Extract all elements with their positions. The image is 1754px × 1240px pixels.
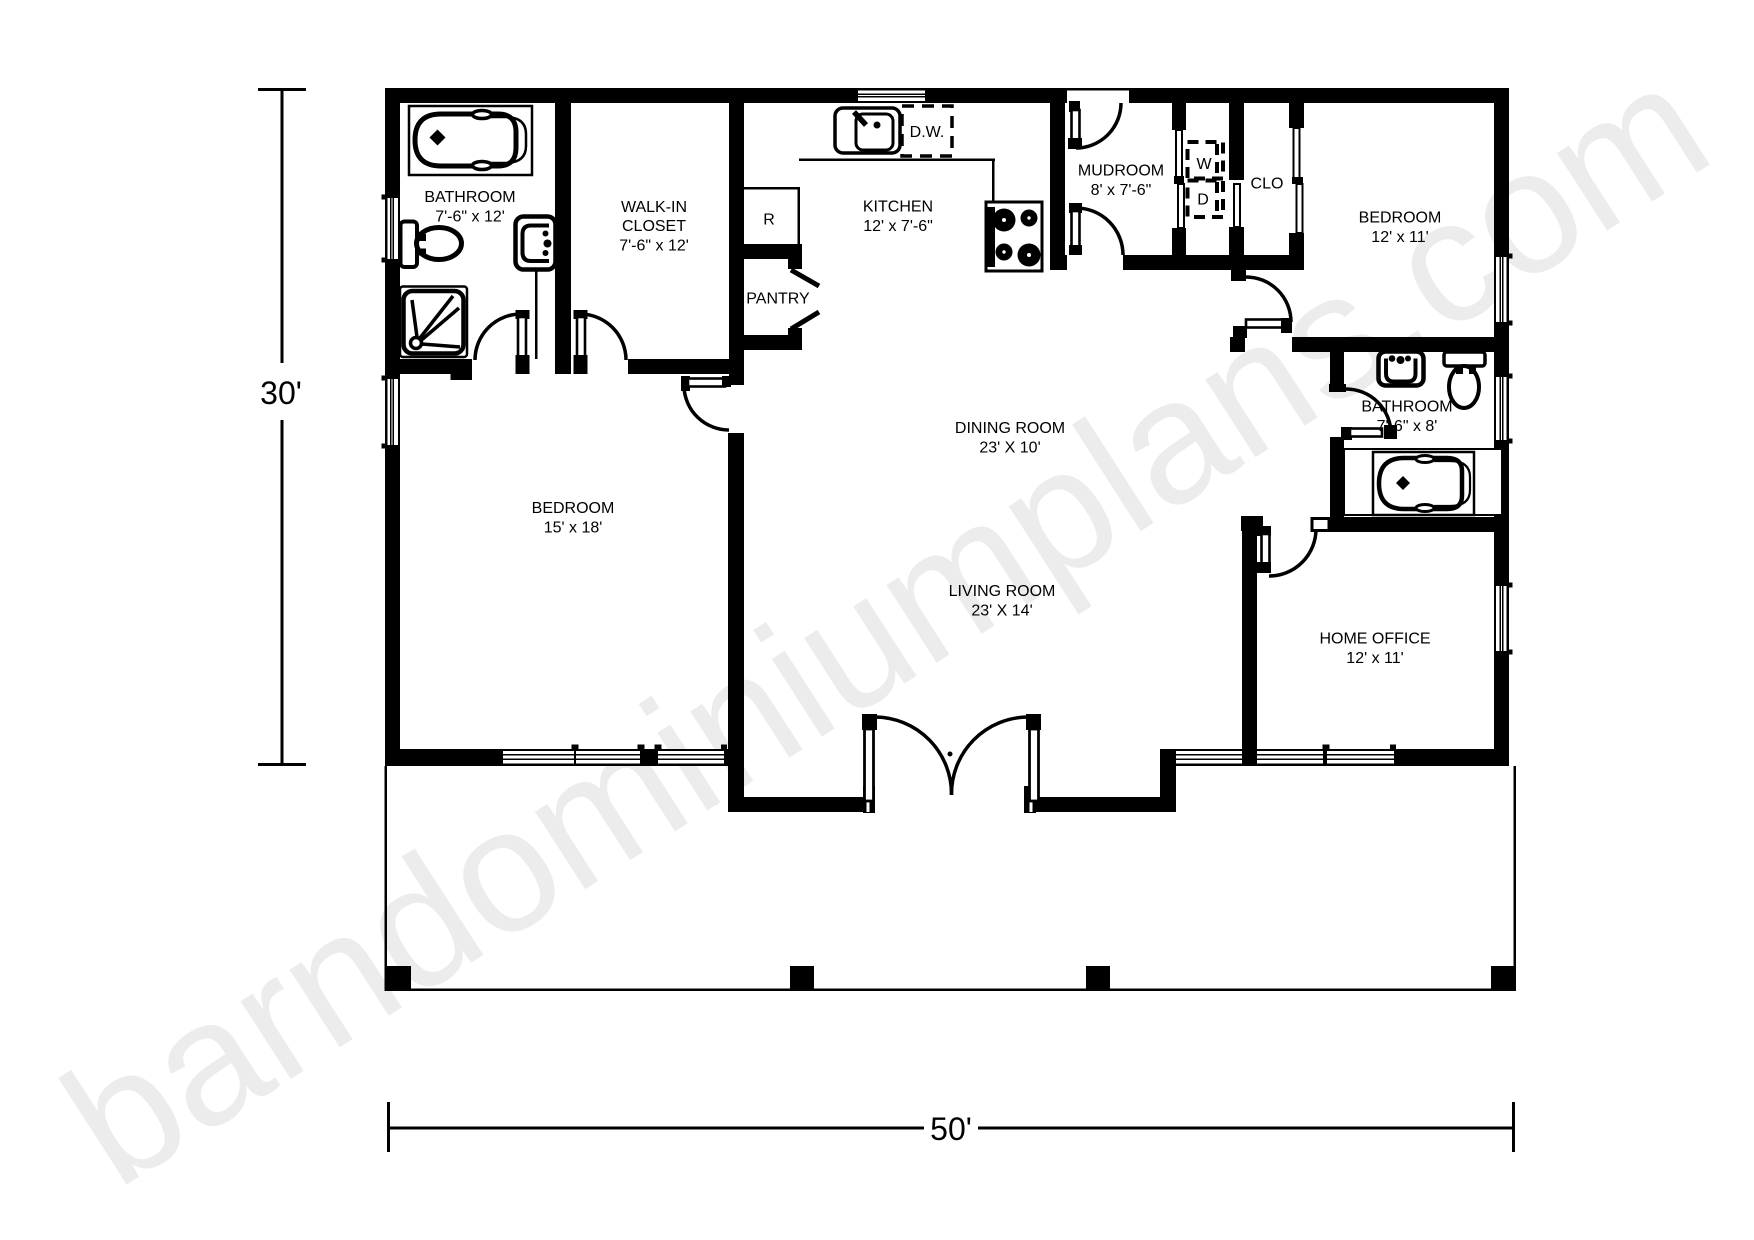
svg-text:R: R <box>763 212 775 229</box>
svg-text:BEDROOM: BEDROOM <box>532 500 615 517</box>
svg-text:8' x 7'-6": 8' x 7'-6" <box>1091 182 1152 199</box>
svg-text:KITCHEN: KITCHEN <box>863 199 933 216</box>
svg-text:23' X 10': 23' X 10' <box>979 440 1040 457</box>
svg-text:CLOSET: CLOSET <box>622 218 686 235</box>
svg-text:7'-6" x 12': 7'-6" x 12' <box>619 238 689 255</box>
svg-text:15' x 18': 15' x 18' <box>544 520 603 537</box>
svg-text:12' x 11': 12' x 11' <box>1371 229 1428 246</box>
svg-text:W: W <box>1196 156 1212 173</box>
svg-text:MUDROOM: MUDROOM <box>1078 163 1164 180</box>
svg-text:HOME OFFICE: HOME OFFICE <box>1319 631 1430 648</box>
svg-text:BATHROOM: BATHROOM <box>424 189 515 206</box>
svg-text:WALK-IN: WALK-IN <box>621 199 687 216</box>
svg-text:D.W.: D.W. <box>910 124 945 141</box>
svg-text:CLO: CLO <box>1251 176 1284 193</box>
svg-text:12' x 7'-6": 12' x 7'-6" <box>863 218 933 235</box>
svg-text:PANTRY: PANTRY <box>746 291 810 308</box>
svg-text:BEDROOM: BEDROOM <box>1359 210 1442 227</box>
svg-text:D: D <box>1197 192 1209 209</box>
svg-text:7'-6" x 12': 7'-6" x 12' <box>435 209 505 226</box>
svg-text:50': 50' <box>930 1111 972 1147</box>
svg-text:BATHROOM: BATHROOM <box>1361 399 1452 416</box>
svg-text:7'-6" x 8': 7'-6" x 8' <box>1377 418 1438 435</box>
svg-text:12' x 11': 12' x 11' <box>1346 650 1403 667</box>
svg-text:23' X 14': 23' X 14' <box>971 603 1032 620</box>
svg-text:LIVING ROOM: LIVING ROOM <box>949 583 1056 600</box>
svg-text:30': 30' <box>260 375 302 411</box>
svg-text:DINING ROOM: DINING ROOM <box>955 420 1065 437</box>
